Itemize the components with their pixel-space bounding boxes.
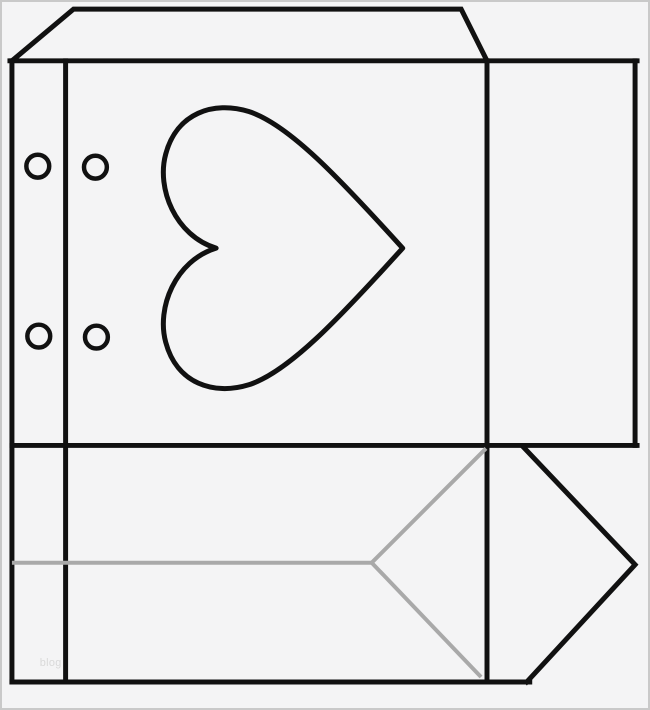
top-glue-flap-outline xyxy=(12,9,487,61)
heart-icon xyxy=(163,108,402,389)
fold-line-lower-diagonal xyxy=(372,563,481,677)
punch-hole-top-right xyxy=(84,156,107,179)
punch-hole-top-left xyxy=(26,155,49,178)
box-template-drawing: blog xyxy=(2,2,648,708)
punch-hole-bottom-right xyxy=(85,326,108,349)
punch-hole-bottom-left xyxy=(27,325,50,348)
corner-flap-outline xyxy=(524,447,635,682)
fold-line-upper-diagonal xyxy=(372,448,486,562)
watermark-text: blog xyxy=(40,657,62,669)
template-canvas: blog xyxy=(0,0,650,710)
